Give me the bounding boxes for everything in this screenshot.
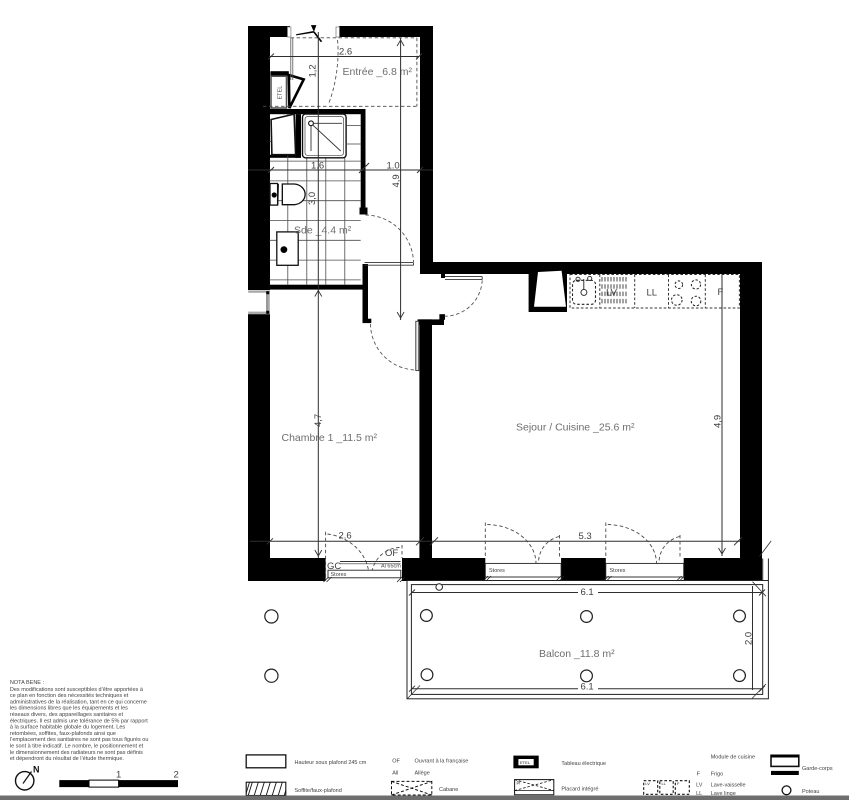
svg-text:N: N: [33, 765, 40, 775]
svg-text:3,0: 3,0: [307, 192, 318, 205]
svg-text:l’emplacement des sanitaires n: l’emplacement des sanitaires ne sont pas…: [10, 737, 149, 743]
svg-text:4,9: 4,9: [713, 415, 724, 428]
svg-text:6.1: 6.1: [581, 587, 594, 598]
svg-text:Stores: Stores: [331, 572, 347, 578]
svg-text:5.3: 5.3: [579, 531, 592, 542]
svg-text:Tableau électrique: Tableau électrique: [561, 761, 606, 767]
svg-text:Sejour / Cuisine _25.6 m²: Sejour / Cuisine _25.6 m²: [516, 422, 635, 434]
svg-text:le sont à titre indicatif. Le: le sont à titre indicatif. Le nombre, le…: [10, 744, 144, 750]
svg-text:Al 65cm: Al 65cm: [381, 564, 401, 570]
svg-text:F: F: [718, 287, 724, 298]
svg-text:LL: LL: [647, 288, 658, 299]
svg-text:Garde-corps: Garde-corps: [802, 766, 833, 772]
svg-text:Frigo: Frigo: [711, 772, 724, 778]
svg-text:LV: LV: [645, 782, 650, 786]
svg-text:Ouvrant à la française: Ouvrant à la française: [415, 759, 469, 765]
svg-text:1.6: 1.6: [311, 161, 324, 172]
svg-text:Balcon _11.8 m²: Balcon _11.8 m²: [539, 648, 615, 660]
svg-text:OF: OF: [392, 759, 400, 765]
svg-text:LL: LL: [662, 782, 666, 786]
svg-text:électriques. Il est admis une: électriques. Il est admis une tolérance …: [10, 718, 148, 724]
svg-text:ce plan en fonction des nécess: ce plan en fonction des nécessités techn…: [10, 693, 129, 699]
svg-text:Poteau: Poteau: [802, 789, 819, 795]
svg-text:6.1: 6.1: [581, 681, 594, 692]
svg-text:Pl: Pl: [517, 781, 521, 786]
svg-text:OF: OF: [385, 548, 398, 559]
svg-text:2.6: 2.6: [339, 47, 352, 58]
svg-text:1: 1: [116, 770, 121, 781]
svg-text:Sde _4.4 m²: Sde _4.4 m²: [294, 224, 352, 236]
svg-text:2,0: 2,0: [744, 632, 755, 645]
svg-text:réseaux divers, des appareilla: réseaux divers, des appareillages sanita…: [10, 712, 124, 718]
svg-text:Soffite/faux-plafond: Soffite/faux-plafond: [295, 788, 342, 794]
svg-text:et dépendront du résultat de l: et dépendront du résultat de l’étude the…: [10, 756, 125, 762]
svg-text:1.0: 1.0: [387, 161, 400, 172]
svg-text:retombées, soffites, faux-plaf: retombées, soffites, faux-plafonds ainsi…: [10, 731, 116, 737]
svg-text:4,7: 4,7: [313, 414, 324, 427]
svg-text:Stores: Stores: [489, 568, 505, 574]
svg-text:Entrée _6.8 m²: Entrée _6.8 m²: [343, 66, 413, 78]
svg-text:NOTA BENE :: NOTA BENE :: [10, 680, 45, 686]
svg-text:ETEL: ETEL: [278, 86, 284, 100]
svg-text:Placard intégré: Placard intégré: [561, 786, 598, 792]
svg-text:LV: LV: [696, 783, 703, 789]
svg-text:2: 2: [174, 770, 179, 781]
svg-text:le dimensionnement des radiate: le dimensionnement des radiateurs ne son…: [10, 750, 143, 756]
svg-text:les dimensions libres que les: les dimensions libres que les équipement…: [10, 706, 128, 712]
svg-text:1,2: 1,2: [308, 64, 319, 77]
svg-text:Cabane: Cabane: [439, 787, 458, 793]
svg-text:All: All: [392, 770, 398, 776]
svg-text:4,9: 4,9: [391, 174, 402, 187]
svg-text:à la surface habitable globale: à la surface habitable globale du logeme…: [10, 725, 126, 731]
svg-text:Module de cuisine: Module de cuisine: [711, 755, 755, 761]
svg-text:administratives de la réalisat: administratives de la réalisation, tant …: [10, 699, 147, 705]
svg-text:Lave-vaisselle: Lave-vaisselle: [711, 783, 746, 789]
svg-text:ETEL: ETEL: [520, 760, 531, 765]
svg-text:LV: LV: [606, 288, 618, 299]
svg-text:Des modifications sont suscept: Des modifications sont susceptibles d’êt…: [10, 687, 144, 693]
svg-text:Stores: Stores: [610, 568, 626, 574]
svg-text:Hauteur sous plafond 245 cm: Hauteur sous plafond 245 cm: [295, 760, 367, 766]
svg-text:Allège: Allège: [415, 770, 430, 776]
svg-text:Chambre 1 _11.5 m²: Chambre 1 _11.5 m²: [282, 432, 378, 444]
